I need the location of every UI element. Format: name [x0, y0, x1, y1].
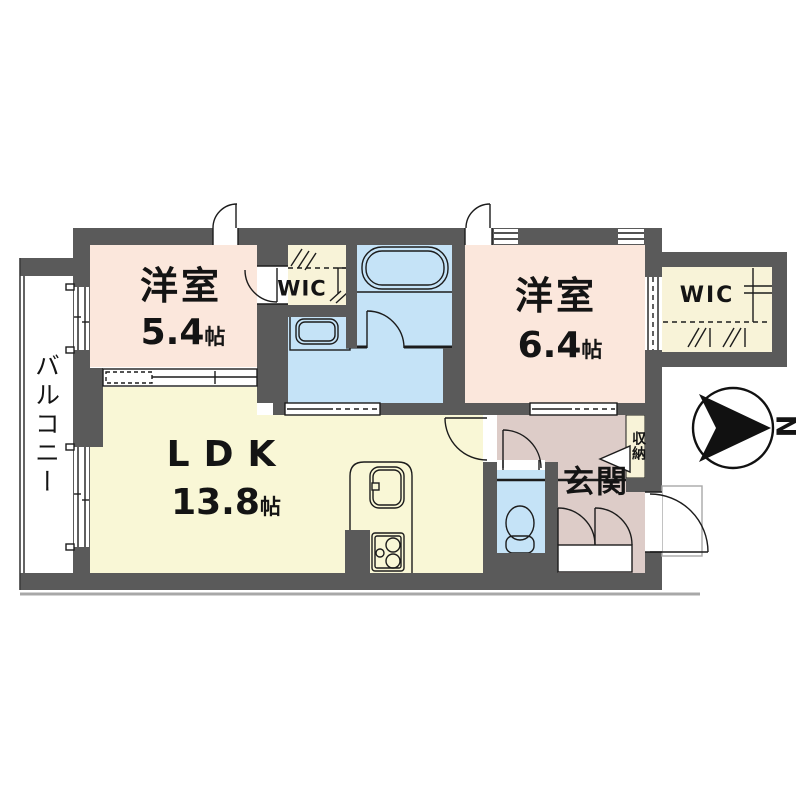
balcony-label: バルコニー — [34, 353, 59, 498]
bedroom1-area-unit: 帖 — [204, 325, 225, 349]
bedroom1-area: 5.4帖 — [141, 315, 226, 351]
balcony-outline — [20, 258, 24, 590]
compass-north-label: N — [772, 415, 799, 438]
washroom-floor-b — [346, 348, 443, 403]
wic-right-label: WIC — [680, 285, 735, 307]
entrance-label: 玄関 — [563, 468, 629, 499]
floor-plan: 洋室 5.4帖 洋室 6.4帖 LDK 13.8帖 WIC WIC バルコニー … — [0, 0, 800, 800]
ldk-area-value: 13.8 — [171, 482, 260, 523]
compass — [693, 388, 773, 468]
bedroom2-name: 洋室 — [515, 277, 597, 315]
toilet-floor — [497, 470, 545, 555]
entrance-door — [645, 486, 708, 556]
bedroom1-balcony-window — [66, 284, 89, 353]
ldk-area: 13.8帖 — [171, 485, 281, 521]
floor-plan-drawing — [0, 0, 800, 800]
bedroom1-name: 洋室 — [140, 267, 222, 305]
bedroom2-top-window-2 — [618, 229, 644, 244]
bedroom1-area-value: 5.4 — [141, 312, 205, 353]
ldk-balcony-window — [66, 444, 89, 550]
storage-label: 収納 — [631, 431, 645, 461]
wic-right-floor — [660, 267, 772, 352]
bedroom2-top-door — [465, 204, 492, 245]
wic-center-label: WIC — [277, 279, 326, 300]
bathroom-floor — [357, 245, 452, 348]
ldk-area-unit: 帖 — [260, 495, 281, 519]
bedroom2-area-unit: 帖 — [581, 338, 602, 362]
bedroom2-floor — [465, 245, 645, 403]
wic-right-entry — [645, 277, 662, 350]
bedroom2-top-window — [494, 229, 518, 244]
bedroom2-area-value: 6.4 — [518, 325, 582, 366]
ldk-name: LDK — [167, 437, 290, 473]
bedroom2-area: 6.4帖 — [518, 328, 603, 364]
washroom-sliding-door — [285, 403, 380, 415]
bedroom1-ldk-partition — [103, 369, 257, 386]
bedroom2-sliding-door — [530, 403, 617, 415]
bedroom1-top-door — [213, 204, 238, 245]
